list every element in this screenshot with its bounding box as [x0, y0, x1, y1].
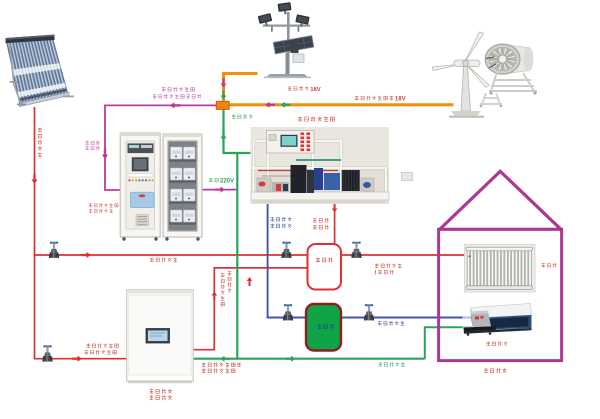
svg-text:220V: 220V [220, 179, 234, 185]
svg-text:18V: 18V [395, 97, 406, 103]
svg-text:18V: 18V [310, 87, 321, 93]
